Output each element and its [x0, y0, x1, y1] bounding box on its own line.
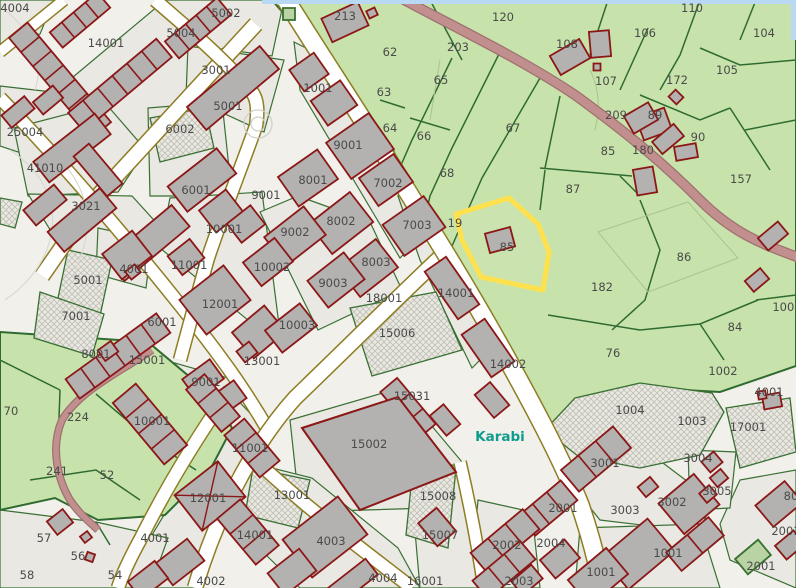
parcel-label: 107	[595, 74, 617, 88]
parcel-label: 1001	[653, 546, 682, 560]
parcel-label: 56	[71, 549, 86, 563]
parcel-label: 1003	[677, 414, 706, 428]
parcel-label: 13001	[244, 354, 281, 368]
parcel-label: 15008	[420, 489, 457, 503]
parcel-label: 2001	[746, 559, 775, 573]
parcel-label: 9003	[318, 276, 347, 290]
building	[85, 552, 95, 562]
parcel-label: 15007	[422, 528, 459, 542]
parcel-label: 5001	[213, 99, 242, 113]
parcel-label: 6001	[181, 183, 210, 197]
building	[674, 143, 698, 161]
parcel-label: 3003	[610, 503, 639, 517]
parcel-label: 8003	[361, 255, 390, 269]
parcel-label: 110	[681, 1, 703, 15]
parcel-label: 106	[634, 26, 656, 40]
parcel-label: 15001	[129, 353, 166, 367]
parcel-label: 62	[383, 45, 398, 59]
parcel-label: 64	[383, 121, 398, 135]
parcel-label: 12001	[190, 491, 227, 505]
parcel-label: 11001	[232, 441, 269, 455]
parcel-label: 68	[440, 166, 455, 180]
parcel-label: 87	[566, 182, 581, 196]
parcel-label: 5004	[166, 26, 195, 40]
parcel-label: 10003	[279, 318, 316, 332]
water-strip-right	[791, 0, 796, 40]
parcel-label: 8001	[81, 347, 110, 361]
parcel-label: 2001	[771, 524, 796, 538]
parcel-label: 7002	[373, 176, 402, 190]
parcel-label: 41010	[27, 161, 64, 175]
parcel-label: 120	[492, 10, 514, 24]
map-canvas[interactable]: 4004140015002500430015001600225004410106…	[0, 0, 796, 588]
parcel-label: 209	[605, 108, 627, 122]
building	[594, 64, 601, 71]
parcel-label: 157	[730, 172, 752, 186]
parcel-label: 63	[377, 85, 392, 99]
parcel-label: 1001	[303, 81, 332, 95]
parcel-label: 108	[556, 37, 578, 51]
parcel-label: 15006	[379, 326, 416, 340]
parcel-label: 25004	[7, 125, 44, 139]
building	[589, 30, 611, 58]
parcel-label: 7003	[402, 218, 431, 232]
parcel-label: 224	[67, 410, 89, 424]
parcel-label: 2002	[492, 538, 521, 552]
parcel-label: 8001	[298, 173, 327, 187]
parcel-label: 180	[632, 143, 654, 157]
parcel-label: 10001	[134, 414, 171, 428]
parcel-label: 182	[591, 280, 613, 294]
parcel-label: 13001	[274, 488, 311, 502]
parcel-label: 76	[606, 346, 621, 360]
parcel-label: 203	[447, 40, 469, 54]
parcel-label: 4002	[196, 574, 225, 588]
parcel-label: 84	[728, 320, 743, 334]
parcel-label: 4004	[0, 1, 29, 15]
parcel-label: 9001	[191, 375, 220, 389]
parcel-label: 67	[506, 121, 521, 135]
parcel-label: 9002	[280, 225, 309, 239]
parcel-label: 1002	[708, 364, 737, 378]
parcel-label: 2004	[536, 536, 565, 550]
parcel-label: 3001	[590, 456, 619, 470]
parcel-label: 104	[753, 26, 775, 40]
parcel-label: 4001	[140, 531, 169, 545]
parcel-label: 89	[648, 108, 663, 122]
parcel-label: 11001	[171, 258, 208, 272]
parcel-label: 1001	[772, 300, 796, 314]
parcel-label: 8002	[326, 214, 355, 228]
parcel-label: 10002	[254, 260, 291, 274]
parcel-label: 9001	[251, 188, 280, 202]
parcel-label: 18001	[366, 291, 403, 305]
parcel-label: 14001	[237, 528, 274, 542]
parcel-label: 4001	[119, 262, 148, 276]
parcel-label: 241	[46, 464, 68, 478]
parcel-label: 3005	[702, 484, 731, 498]
parcel-label: 6001	[147, 315, 176, 329]
parcel-label: 2001	[548, 501, 577, 515]
parcel-label: 80	[784, 489, 796, 503]
parcel-label: 4001	[754, 385, 783, 399]
cadastral-map-svg[interactable]: 4004140015002500430015001600225004410106…	[0, 0, 796, 588]
parcel-label: 213	[334, 9, 356, 23]
parcel-label: 19	[448, 216, 463, 230]
parcel-label: 52	[100, 468, 115, 482]
parcel-label: 5001	[73, 273, 102, 287]
parcel-label: 3004	[683, 451, 712, 465]
parcel-label: 1004	[615, 403, 644, 417]
parcel-label: 70	[4, 404, 19, 418]
parcel-label: 3021	[71, 199, 100, 213]
place-label-karabi: Karabi	[475, 429, 525, 445]
parcel-label: 4003	[316, 534, 345, 548]
parcel-label: 3001	[201, 63, 230, 77]
parcel-label: 65	[434, 73, 449, 87]
parcel-label: 2003	[504, 574, 533, 588]
parcel-label: 172	[666, 73, 688, 87]
parcel-label: 54	[108, 568, 123, 582]
parcel-label: 85	[601, 144, 616, 158]
parcel-label: 7001	[61, 309, 90, 323]
parcel-label: 57	[37, 531, 52, 545]
parcel-label: 85	[500, 240, 515, 254]
parcel-label: 15031	[394, 389, 431, 403]
water-strip-top	[262, 0, 796, 4]
parcel-label: 12001	[202, 297, 239, 311]
parcel-label: 6002	[165, 122, 194, 136]
building	[633, 167, 657, 196]
parcel-label: 15002	[351, 437, 388, 451]
parcel-label: 10001	[206, 222, 243, 236]
parcel-label: 14001	[438, 286, 475, 300]
parcel-label: 105	[716, 63, 738, 77]
parcel-label: 17001	[730, 420, 767, 434]
parcel-label: 58	[20, 568, 35, 582]
parcel-label: 9001	[333, 138, 362, 152]
parcel-label: 66	[417, 129, 432, 143]
parcel-label: 14001	[88, 36, 125, 50]
parcel-label: 4004	[368, 571, 397, 585]
parcel-label: 1001	[586, 565, 615, 579]
parcel-label: 16001	[407, 574, 444, 588]
parcel-label: 86	[677, 250, 692, 264]
parcel-label: 5002	[211, 6, 240, 20]
building	[283, 8, 295, 20]
parcel-label: 90	[691, 130, 706, 144]
parcel-label: 14002	[490, 357, 527, 371]
parcel-label: 3002	[657, 495, 686, 509]
